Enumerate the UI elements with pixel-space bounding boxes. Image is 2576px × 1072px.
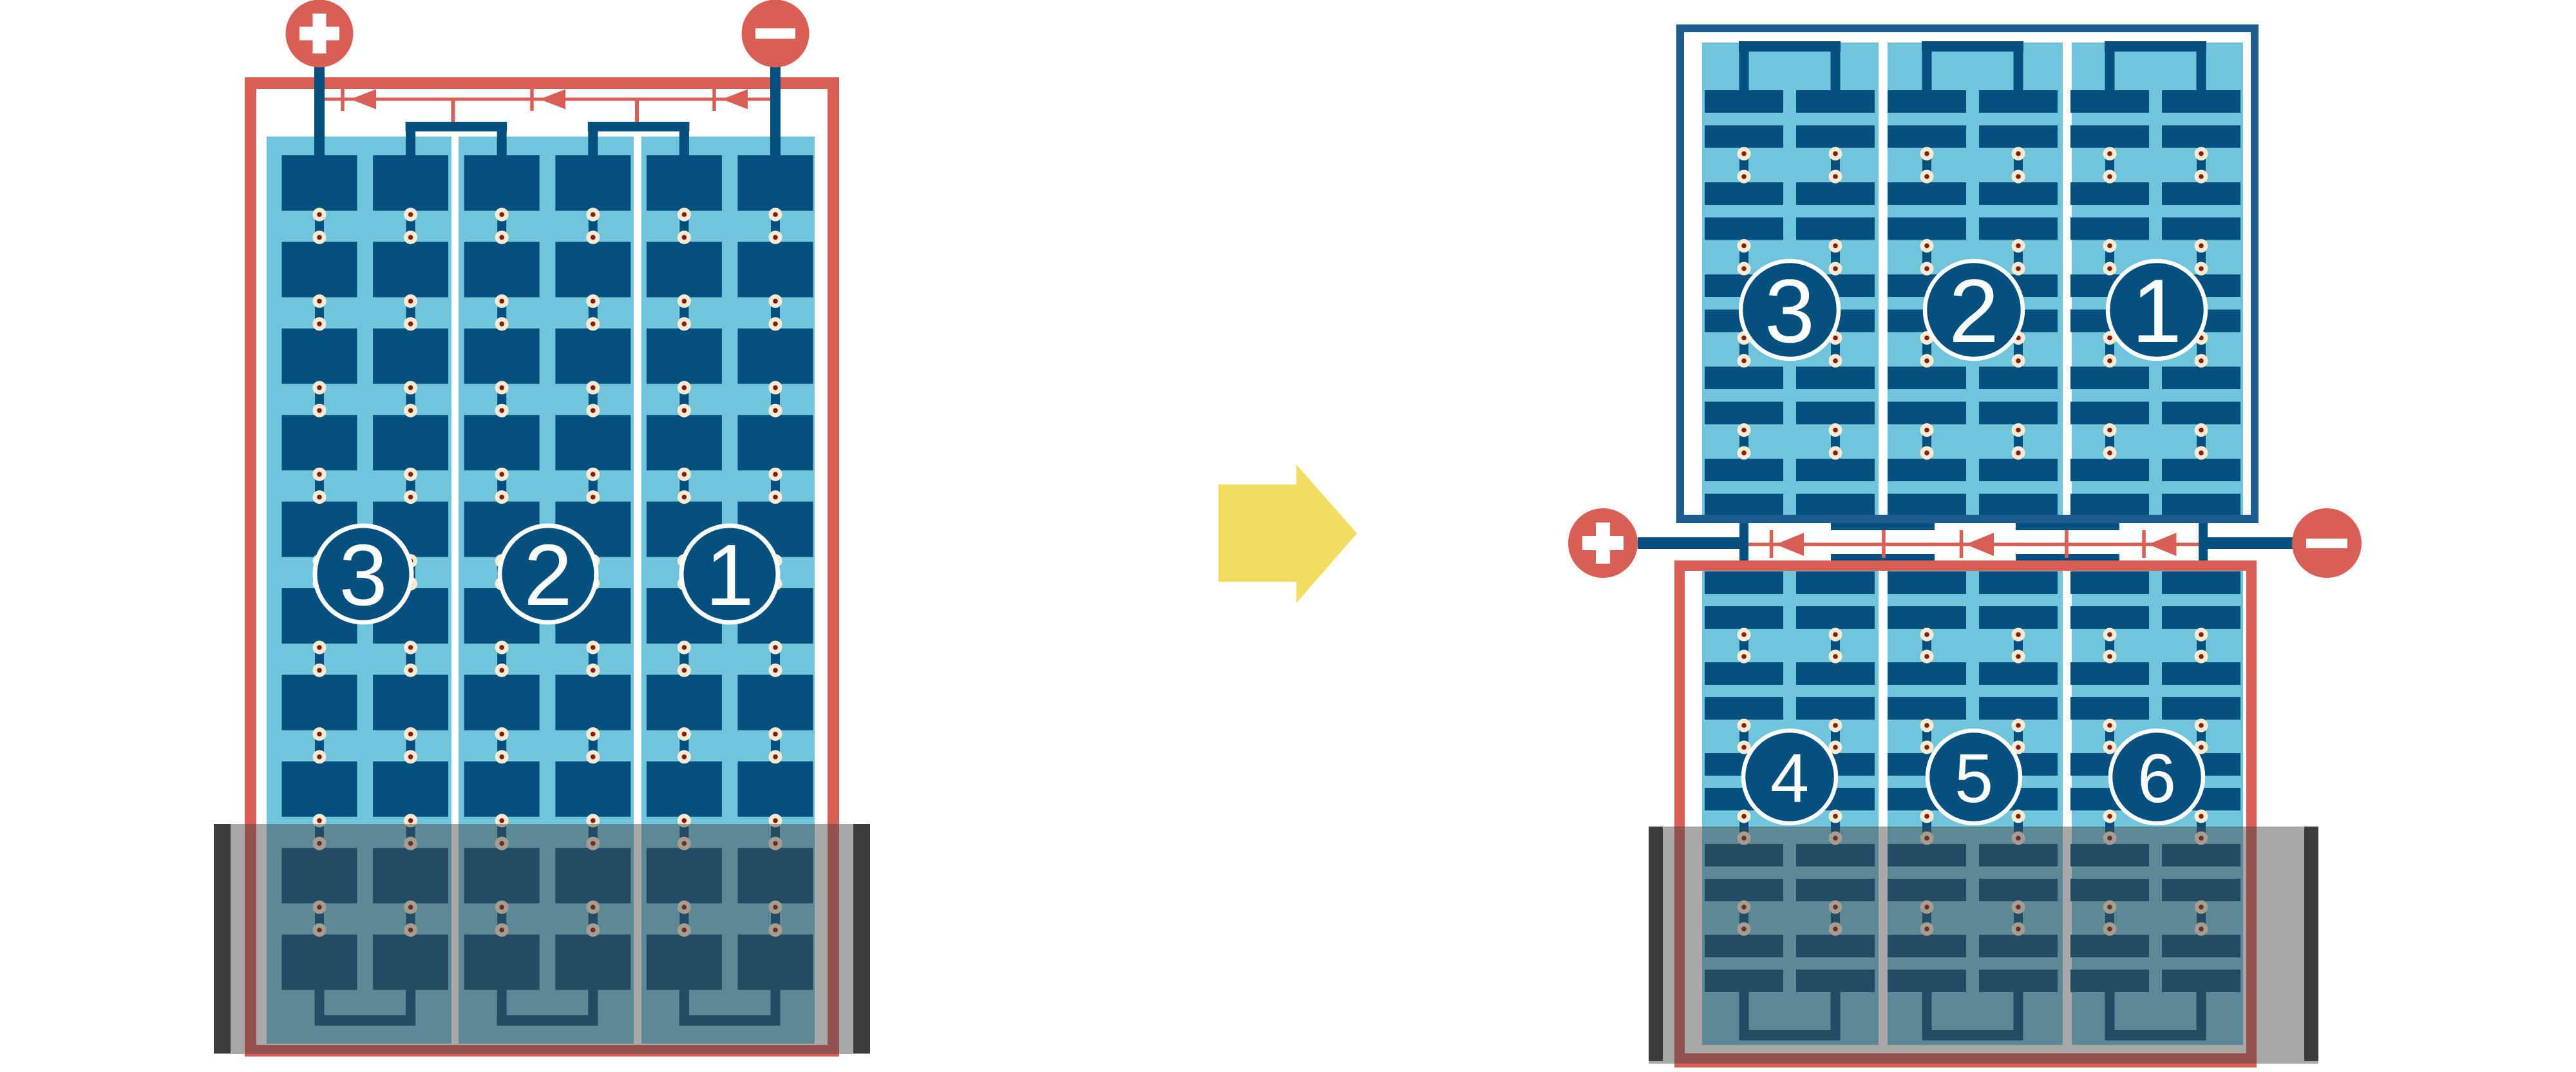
svg-text:1: 1 xyxy=(2132,260,2182,361)
svg-text:3: 3 xyxy=(1765,260,1815,361)
svg-text:4: 4 xyxy=(1770,739,1809,817)
svg-text:2: 2 xyxy=(1949,260,1999,361)
svg-text:2: 2 xyxy=(524,526,572,624)
svg-text:1: 1 xyxy=(705,526,753,624)
svg-text:5: 5 xyxy=(1955,739,1993,817)
svg-text:6: 6 xyxy=(2137,739,2176,817)
svg-text:3: 3 xyxy=(339,526,387,624)
